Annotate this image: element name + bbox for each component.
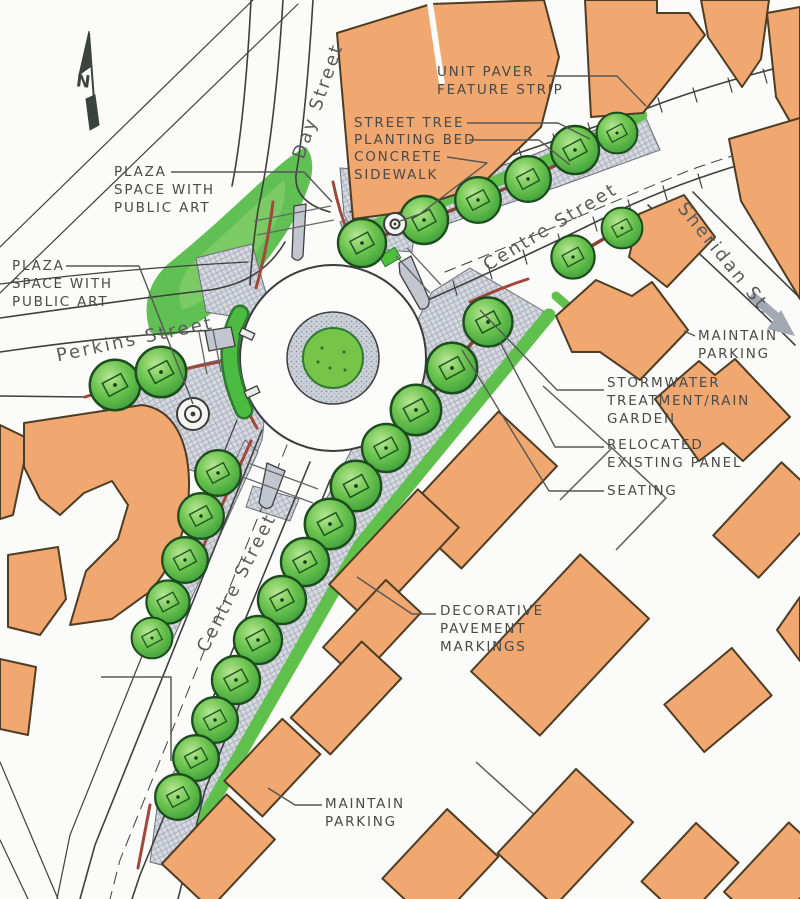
annotation-plaza-space-upper: PLAZA SPACE WITH PUBLIC ART (114, 164, 215, 217)
site-plan-map: UNIT PAVER FEATURE STRIP STREET TREE PLA… (0, 0, 800, 899)
public-art-marker-upper (384, 213, 406, 235)
annotation-stormwater-rain-garden: STORMWATER TREATMENT/RAIN GARDEN (607, 375, 750, 428)
annotation-concrete-sidewalk: CONCRETE SIDEWALK (354, 149, 443, 185)
annotation-maintain-parking-ne: MAINTAIN PARKING (698, 328, 778, 364)
annotation-relocated-existing-panel: RELOCATED EXISTING PANEL (607, 437, 742, 473)
annotation-decorative-pavement-markings: DECORATIVE PAVEMENT MARKINGS (440, 603, 544, 656)
annotation-street-tree: STREET TREE (354, 115, 464, 133)
annotation-unit-paver-feature-strip: UNIT PAVER FEATURE STRIP (437, 64, 564, 100)
annotation-seating: SEATING (607, 483, 678, 501)
annotation-plaza-space-lower: PLAZA SPACE WITH PUBLIC ART (12, 258, 113, 311)
roundabout-green-island (303, 328, 363, 388)
north-arrow-label: N (75, 71, 92, 93)
annotation-maintain-parking-south: MAINTAIN PARKING (325, 796, 405, 832)
annotation-planting-bed: PLANTING BED (354, 132, 476, 150)
